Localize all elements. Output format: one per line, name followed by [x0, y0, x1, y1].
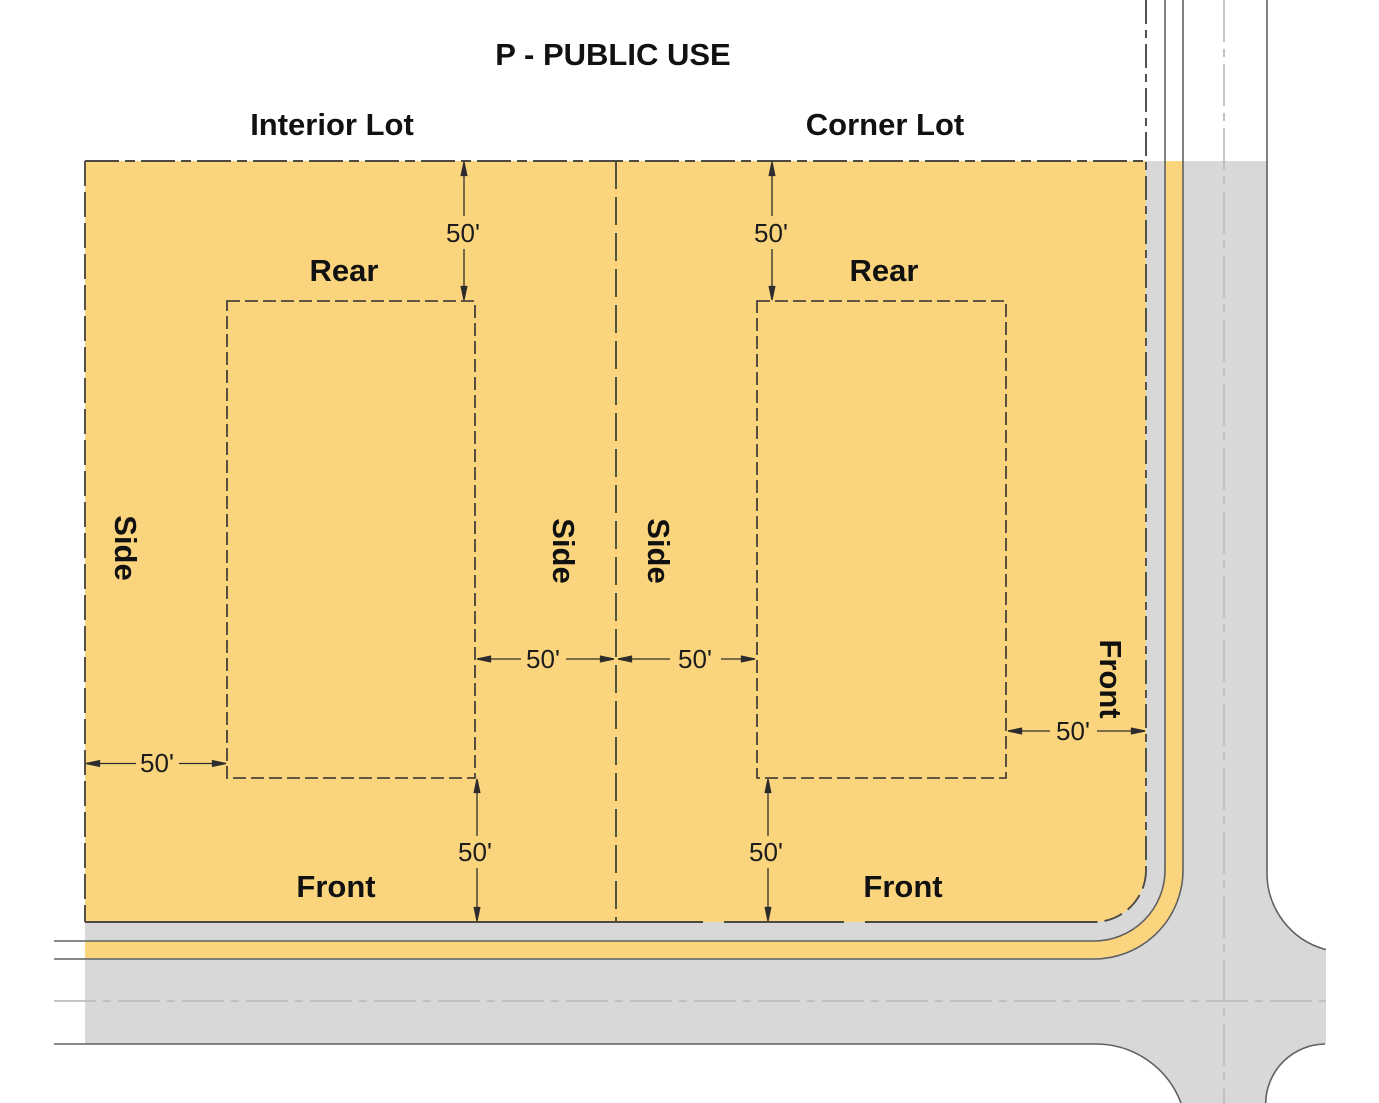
svg-text:Front: Front [296, 869, 375, 904]
svg-text:Side: Side [641, 518, 676, 583]
svg-text:50': 50' [526, 644, 560, 674]
svg-text:Front: Front [863, 869, 942, 904]
svg-text:50': 50' [1056, 716, 1090, 746]
svg-text:Rear: Rear [310, 253, 379, 288]
svg-text:Interior Lot: Interior Lot [250, 107, 414, 142]
svg-text:50': 50' [754, 218, 788, 248]
svg-text:Side: Side [108, 515, 143, 580]
svg-text:50': 50' [446, 218, 480, 248]
svg-text:Rear: Rear [850, 253, 919, 288]
svg-text:50': 50' [678, 644, 712, 674]
svg-text:Corner Lot: Corner Lot [806, 107, 964, 142]
svg-text:Front: Front [1093, 639, 1128, 718]
svg-text:50': 50' [140, 748, 174, 778]
svg-text:P - PUBLIC USE: P - PUBLIC USE [495, 37, 730, 72]
svg-text:Side: Side [546, 518, 581, 583]
svg-text:50': 50' [458, 837, 492, 867]
svg-text:50': 50' [749, 837, 783, 867]
